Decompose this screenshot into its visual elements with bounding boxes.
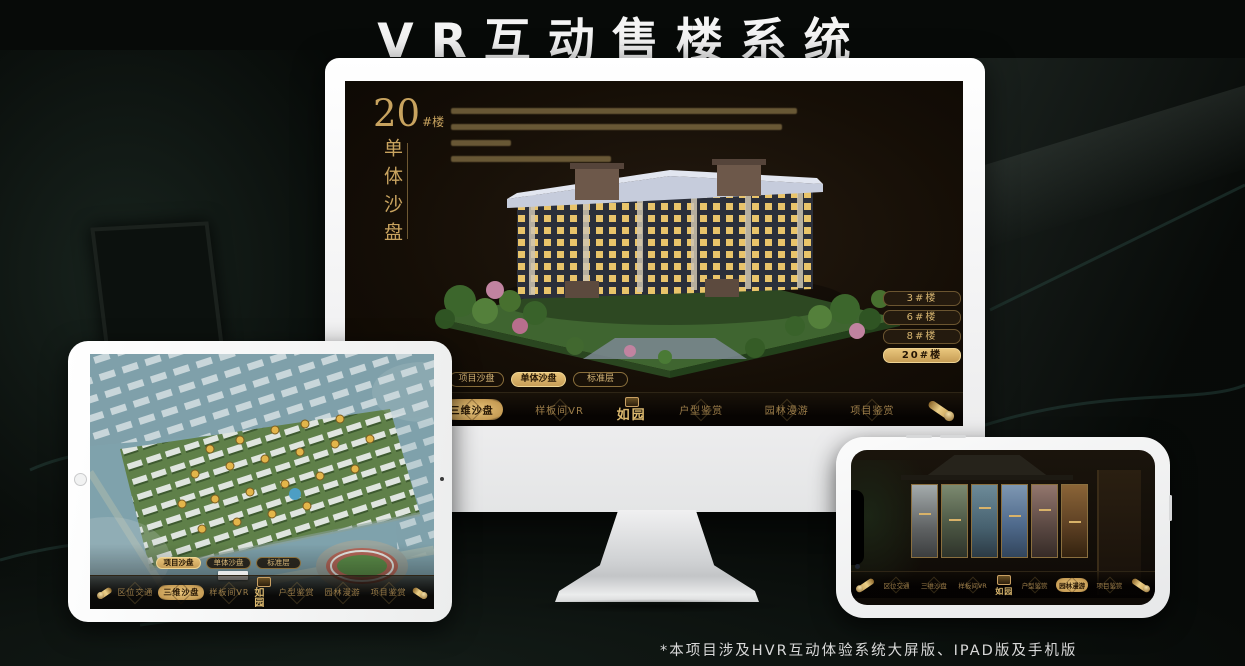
scroll-icon[interactable]: [411, 586, 426, 599]
menu-item-project-view[interactable]: 项目鉴赏: [366, 585, 412, 600]
tab-standard-floor[interactable]: 标准层: [256, 557, 301, 569]
building-unit: #楼: [422, 115, 444, 129]
poster: VR互动售楼系统 20#楼 单体沙盘: [0, 0, 1245, 666]
tablet-camera-icon: [440, 477, 444, 481]
menu-item-showroom-vr[interactable]: 样板间VR: [204, 585, 254, 600]
tablet-menubar: 区位交通 三维沙盘 样板间VR 如园 户型鉴赏 园林漫游 项目鉴赏: [90, 575, 434, 609]
menu-item-project-view[interactable]: 项目鉴赏: [1094, 578, 1126, 592]
scene-panel[interactable]: [911, 484, 938, 558]
scene-panel[interactable]: [941, 484, 968, 558]
menu-item-showroom-vr[interactable]: 样板间VR: [526, 399, 593, 420]
building-3d-model[interactable]: [425, 141, 915, 381]
footnote: *本项目涉及HVR互动体验系统大屏版、IPAD版及手机版: [660, 639, 1077, 660]
tab-single-sandbox[interactable]: 单体沙盘: [511, 372, 566, 387]
description-line: [451, 124, 782, 130]
tablet-home-button[interactable]: [74, 473, 87, 486]
heading-rule: [407, 143, 408, 239]
phone-device: 区位交通 三维沙盘 样板间VR 如园 户型鉴赏 园林漫游 项目鉴赏: [836, 437, 1170, 618]
floor-button-active[interactable]: 20#楼: [883, 348, 961, 363]
monitor-stand: [555, 510, 759, 602]
phone-side-button[interactable]: [1169, 495, 1172, 521]
floor-button[interactable]: 3#楼: [883, 291, 961, 306]
scene-panel[interactable]: [1031, 484, 1058, 558]
logo-emblem-icon: [257, 577, 271, 587]
masterplan-aerial-view[interactable]: [90, 354, 434, 609]
scroll-icon[interactable]: [1131, 577, 1149, 592]
scroll-icon[interactable]: [98, 586, 113, 599]
menu-item-showroom-vr[interactable]: 样板间VR: [955, 578, 989, 592]
view-tabs: 项目沙盘 单体沙盘 标准层: [449, 372, 628, 387]
menu-item-unit-plans[interactable]: 户型鉴赏: [1019, 578, 1051, 592]
phone-menubar: 区位交通 三维沙盘 样板间VR 如园 户型鉴赏 园林漫游 项目鉴赏: [851, 571, 1155, 598]
pavilion-beam: [901, 475, 1073, 480]
scene-panel[interactable]: [1001, 484, 1028, 558]
menu-item-sandbox[interactable]: 三维沙盘: [158, 585, 204, 600]
building-number: 20: [373, 92, 420, 135]
scene-panel[interactable]: [1061, 484, 1088, 558]
tablet-screen: 项目沙盘 单体沙盘 标准层 区位交通 三维沙盘 样板间VR 如园 户型鉴赏 园林…: [90, 354, 434, 609]
pavilion-roof-silhouette: [913, 455, 1061, 475]
tab-standard-floor[interactable]: 标准层: [573, 372, 628, 387]
menu-item-location[interactable]: 区位交通: [880, 578, 912, 592]
phone-notch: [851, 490, 864, 565]
scene-panel[interactable]: [971, 484, 998, 558]
menu-item-unit-plans[interactable]: 户型鉴赏: [274, 585, 320, 600]
menu-item-sandbox[interactable]: 三维沙盘: [918, 578, 950, 592]
phone-camera-icon: [855, 564, 860, 569]
floor-button[interactable]: 6#楼: [883, 310, 961, 325]
tab-project-sandbox[interactable]: 项目沙盘: [156, 557, 201, 569]
phone-volume-button[interactable]: [906, 435, 932, 438]
tab-single-sandbox[interactable]: 单体沙盘: [206, 557, 251, 569]
phone-volume-button[interactable]: [940, 435, 966, 438]
building-subtitle: 单体沙盘: [379, 138, 406, 258]
floor-selector: 3#楼 6#楼 8#楼 20#楼: [883, 291, 961, 367]
menu-item-garden-tour[interactable]: 园林漫游: [756, 399, 818, 420]
logo-emblem-icon: [625, 397, 639, 407]
menu-item-project-view[interactable]: 项目鉴赏: [841, 399, 903, 420]
phone-screen: 区位交通 三维沙盘 样板间VR 如园 户型鉴赏 园林漫游 项目鉴赏: [851, 450, 1155, 605]
tablet-device: 项目沙盘 单体沙盘 标准层 区位交通 三维沙盘 样板间VR 如园 户型鉴赏 园林…: [68, 341, 452, 622]
tablet-view-tabs: 项目沙盘 单体沙盘 标准层: [156, 557, 301, 569]
scene-gallery: [911, 484, 1088, 558]
brand-logo: 如园: [617, 397, 647, 422]
menu-item-garden-tour[interactable]: 园林漫游: [320, 585, 366, 600]
brand-logo: 如园: [254, 577, 273, 609]
scroll-icon[interactable]: [857, 577, 875, 592]
tab-project-sandbox[interactable]: 项目沙盘: [449, 372, 504, 387]
scroll-icon[interactable]: [927, 399, 953, 420]
logo-emblem-icon: [997, 575, 1011, 585]
description-line: [451, 108, 797, 114]
monitor-stand-shadow: [525, 599, 789, 613]
menu-item-garden-tour[interactable]: 园林漫游: [1056, 578, 1088, 592]
menu-item-unit-plans[interactable]: 户型鉴赏: [670, 399, 732, 420]
menu-item-location[interactable]: 区位交通: [112, 585, 158, 600]
floor-button[interactable]: 8#楼: [883, 329, 961, 344]
brand-logo: 如园: [995, 575, 1013, 595]
